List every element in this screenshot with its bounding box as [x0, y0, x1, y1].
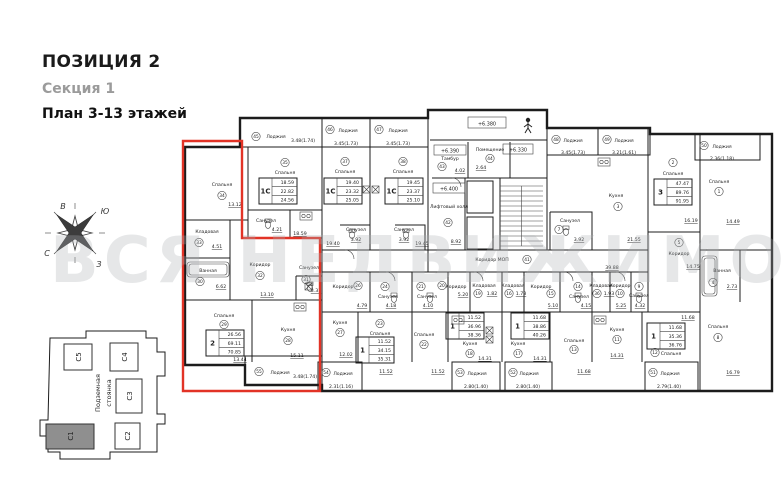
room-area: 11.52 [379, 369, 392, 375]
room-number: 20 [439, 283, 445, 289]
loggia-dims: 3.45(1.73) [334, 141, 358, 147]
room-r15: Коридор155.10 [531, 284, 559, 309]
room-name: Санузел [299, 265, 319, 271]
room-number: 7 [558, 227, 561, 233]
room-area: 21.55 [627, 237, 640, 243]
room-area: 13.10 [260, 292, 273, 298]
room-name: Лифтовый холл [430, 203, 468, 210]
room-r11: Кухня1114.31 [610, 327, 625, 359]
loggia-l49: 49Лоджия3.21(1.61) [598, 128, 650, 156]
loggia-l55: 55Лоджия3.48(1.74) [245, 356, 322, 385]
loggia-label: Лоджия [338, 128, 358, 134]
room-number: 18 [467, 351, 473, 357]
loggia-label: Лоджия [270, 370, 290, 376]
room-name: Спальня [708, 324, 729, 330]
loggia-dims: 2.80(1.40) [516, 384, 540, 390]
loggia-number: 47 [376, 127, 382, 133]
room-area: 5.10 [548, 303, 558, 309]
loggia-dims: 3.48(1.74) [291, 138, 315, 144]
unit-area-row: 47.47 [676, 181, 689, 187]
unit-type: 1 [651, 333, 656, 341]
room-r19: Кладовая191.82 [472, 283, 497, 298]
unit-table-u3: 347.4789.7691.95 [654, 179, 692, 205]
room-area: 2.64 [476, 165, 486, 171]
room-r33: Кладовая334.51 [195, 229, 222, 250]
loggia-label: Лоджия [467, 371, 487, 377]
room-name: Спальня [709, 179, 730, 185]
loggia-dims: 3.48(1.74) [293, 374, 317, 380]
site-label-c1: С1 [67, 431, 75, 440]
room-area: 1.82 [487, 291, 497, 297]
room-name: Санузел [560, 218, 580, 224]
unit-area-row: 35.31 [378, 356, 391, 362]
room-area: 14.31 [533, 356, 546, 362]
room-r44: Помещение442.64 [476, 147, 505, 171]
room-name: Кладовая [501, 283, 525, 289]
room-name: Спальня [414, 332, 435, 338]
room-name: Коридор [446, 284, 467, 290]
elevation-value: +6.390 [441, 148, 459, 154]
room-number: 4 [712, 280, 715, 286]
compass-label-west: З [96, 260, 101, 269]
room-area: 16.79 [726, 370, 739, 376]
room-number: 17 [515, 351, 521, 357]
room-b35: Санузел4.21 [256, 218, 282, 233]
room-area: 39.88 [605, 265, 618, 271]
room-area: 14.31 [610, 353, 623, 359]
loggia-number: 50 [701, 143, 707, 149]
loggia-number: 51 [650, 370, 656, 376]
room-number: 12 [652, 350, 658, 356]
unit-area-row: 38.86 [533, 324, 546, 330]
room-area: 13.44 [233, 357, 246, 363]
door-swing [564, 272, 573, 281]
unit-table-uD: 111.6835.3636.76 [647, 323, 685, 349]
room-name: Помещение [476, 147, 505, 153]
room-name: Кухня [609, 193, 624, 199]
room-r18: Кухня1814.31 [463, 341, 492, 362]
room-name: Спальня [564, 338, 585, 344]
loggia-label: Лоджия [519, 371, 539, 377]
room-r23: Спальня2311.52 [370, 319, 393, 375]
unit-type: 1 [515, 323, 520, 331]
unit-area-row: 36.96 [468, 324, 481, 330]
room-r31: Санузел313.31 [299, 265, 321, 294]
loggia-dims: 3.45(1.73) [386, 141, 410, 147]
room-name: Кухня [610, 327, 625, 333]
unit-area-row: 11.52 [468, 315, 481, 321]
room-area: 4.51 [212, 244, 222, 250]
room-area: 19.45 [415, 241, 428, 247]
room-name: Ванная [713, 268, 731, 274]
room-number: 13 [571, 347, 577, 353]
room-area: 4.21 [272, 227, 282, 233]
compass-label-east: В [60, 202, 66, 211]
unit-area-row: 70.85 [228, 349, 241, 355]
room-name: Кухня [511, 341, 526, 347]
vent-shaft [372, 186, 379, 193]
room-number: 26 [355, 283, 361, 289]
room-name: Спальня [212, 182, 233, 188]
unit-table-u2: 226.5669.1170.85 [206, 330, 244, 356]
unit-area-row: 40.26 [533, 332, 546, 338]
room-r34: Спальня3413.12 [212, 182, 242, 208]
vent-shaft [363, 186, 370, 193]
unit-area-row: 23.37 [407, 189, 420, 195]
loggia-l51: 51Лоджия2.79(1.40) [645, 362, 698, 391]
room-number: 43 [439, 164, 445, 170]
room-r27: Кухня2712.02 [333, 320, 353, 358]
door-swing [474, 272, 483, 281]
room-r32: Коридор3213.10 [250, 262, 274, 298]
room-area: 11.68 [681, 315, 694, 321]
door-swing [386, 272, 395, 281]
evacuation-person-icon [524, 118, 532, 133]
room-area: 11.68 [577, 369, 590, 375]
room-name: Спальня [663, 171, 684, 177]
unit-area-row: 38.36 [468, 332, 481, 338]
room-r3: Кухня321.55 [609, 193, 641, 243]
unit-area-row: 22.82 [281, 189, 294, 195]
loggia-dims: 2.80(1.40) [464, 384, 488, 390]
room-r28: Кухня2815.11 [281, 327, 304, 359]
unit-area-row: 26.56 [228, 332, 241, 338]
loggia-l50: 50Лоджия2.36(1.18) [695, 134, 760, 162]
site-label-c2: С2 [124, 431, 132, 440]
loggia-l45: 45Лоджия3.48(1.74) [240, 118, 322, 147]
unit-area-row: 19.40 [346, 180, 359, 186]
room-name: Кухня [281, 327, 296, 333]
unit-area-row: 19.45 [407, 180, 420, 186]
room-number: 3 [617, 204, 620, 210]
staircase-steps [500, 186, 543, 246]
room-number: 33 [196, 240, 202, 246]
loggia-l52: 52Лоджия2.80(1.40) [505, 362, 552, 391]
room-name: Кладовая [195, 229, 219, 235]
room-area: 4.15 [581, 303, 591, 309]
room-area: 4.79 [357, 303, 367, 309]
unit-area-row: 11.68 [533, 315, 546, 321]
compass-label-south: Ю [101, 207, 110, 216]
room-name: Спальня [275, 170, 296, 176]
site-plan: С5 С4 С3 С2 С1 Подземная стоянка [40, 331, 165, 459]
room-area: 4.32 [635, 303, 645, 309]
unit-table-uC: 111.6838.8640.26 [511, 313, 549, 339]
room-name: Спальня [370, 331, 391, 337]
unit-area-row: 91.95 [676, 198, 689, 204]
unit-area-row: 36.76 [669, 342, 682, 348]
room-area: 11.52 [431, 369, 444, 375]
room-area: 2.73 [727, 284, 737, 290]
room-name: Ванная [199, 268, 217, 274]
unit-type: 1С [260, 188, 270, 196]
room-name: Санузел [378, 294, 398, 300]
loggia-l46: 46Лоджия3.45(1.73) [322, 118, 370, 147]
room-number: 42 [445, 220, 451, 226]
room-number: 22 [421, 342, 427, 348]
room-r30: Ванная306.62 [196, 268, 226, 290]
site-parking-label-1: Подземная [94, 374, 102, 412]
loggia-number: 45 [253, 134, 259, 140]
room-number: 15 [548, 291, 554, 297]
room-number: 14 [575, 284, 581, 290]
room-r8: Спальня816.79 [708, 324, 740, 376]
room-r17: Кухня1714.31 [511, 341, 547, 362]
elevation-mark: +6.380 [468, 117, 506, 128]
room-area: 13.12 [228, 202, 241, 208]
room-area: 3.92 [574, 237, 584, 243]
room-number: 30 [197, 279, 203, 285]
room-r26: Коридор264.79 [333, 281, 368, 309]
room-name: Коридор [669, 251, 690, 257]
loggia-dims: 2.31(1.16) [329, 384, 353, 390]
loggia-dims: 3.45(1.73) [561, 150, 585, 156]
loggia-l48: 48Лоджия3.45(1.73) [547, 128, 598, 156]
unit-area-row: 24.56 [281, 197, 294, 203]
room-number: 9 [638, 284, 641, 290]
unit-area-row: 69.11 [228, 341, 241, 347]
room-area: 4.10 [423, 303, 433, 309]
room-number: 37 [342, 159, 348, 165]
room-number: 32 [257, 273, 263, 279]
elevation-mark: +6.400 [433, 183, 465, 193]
room-area: 18.59 [293, 231, 306, 237]
room-number: 5 [678, 240, 681, 246]
room-name: Спальня [214, 313, 235, 319]
loggia-dims: 3.21(1.61) [612, 150, 636, 156]
room-number: 38 [400, 159, 406, 165]
room-r4: Ванная42.73 [709, 268, 737, 290]
unit-area-row: 89.76 [676, 190, 689, 196]
room-name: Кладовая [472, 283, 496, 289]
room-number: 16 [506, 291, 512, 297]
loggia-number: 53 [457, 370, 463, 376]
room-r22: Спальня2211.52 [414, 332, 445, 375]
unit-table-u38: 1С19.4523.3725.10 [385, 178, 423, 204]
vent-shaft [486, 336, 493, 343]
room-r20: Коридор205.20 [438, 281, 468, 298]
room-r5: Коридор514.75 [669, 238, 700, 270]
room-area: 6.62 [216, 284, 226, 290]
room-area: 14.31 [478, 356, 491, 362]
stove-fixture [294, 303, 306, 311]
unit-type: 1 [360, 347, 365, 355]
room-area: 19.40 [326, 241, 339, 247]
section-subtitle: Секция 1 [42, 81, 187, 97]
loggia-l47: 47Лоджия3.45(1.73) [370, 118, 428, 147]
room-r16: Кладовая161.73 [501, 283, 526, 298]
room-r42: Лифтовый холл428.92 [430, 203, 468, 245]
room-name: Кухня [463, 341, 478, 347]
room-number: 24 [382, 284, 388, 290]
stove-fixture [300, 212, 312, 220]
loggia-label: Лоджия [660, 371, 680, 377]
room-name: Санузел [629, 293, 649, 299]
room-r1: Спальня114.49 [709, 179, 740, 225]
room-name: Санузел [569, 294, 589, 300]
loggia-label: Лоджия [614, 138, 634, 144]
loggia-number: 55 [256, 369, 262, 375]
room-number: 10 [617, 291, 623, 297]
room-number: 35 [282, 160, 288, 166]
room-name: Коридор [610, 283, 631, 289]
unit-area-row: 34.15 [378, 348, 391, 354]
plan-subtitle: План 3-13 этажей [42, 106, 187, 122]
compass-label-north: С [44, 249, 50, 258]
unit-type: 2 [210, 340, 215, 348]
room-r13: Спальня1311.68 [564, 338, 591, 375]
room-area: 8.92 [451, 239, 461, 245]
site-label-c3: С3 [126, 391, 134, 400]
bathtub-fixture [702, 256, 717, 296]
unit-type: 3 [658, 189, 663, 197]
unit-area-row: 25.10 [407, 197, 420, 203]
room-number: 28 [285, 338, 291, 344]
room-area: 1.73 [516, 291, 526, 297]
room-area: 16.19 [684, 218, 697, 224]
room-name: Спальня [661, 351, 682, 357]
unit-area-row: 35.36 [669, 334, 682, 340]
site-parking-label-2: стоянка [105, 379, 113, 406]
loggia-l53: 53Лоджия2.80(1.40) [452, 362, 500, 391]
room-number: 2 [672, 160, 675, 166]
site-label-c5: С5 [75, 352, 83, 361]
room-b38: Санузел3.92 [394, 227, 414, 243]
room-area: 1.93 [604, 291, 614, 297]
loggia-label: Лоджия [333, 371, 353, 377]
room-area: 4.18 [386, 303, 396, 309]
door-swing [345, 250, 354, 259]
room-name: Коридор [531, 284, 552, 290]
room-number: 11 [614, 337, 620, 343]
room-number: 34 [219, 193, 225, 199]
elevator-shaft-1 [467, 181, 493, 213]
room-name: Коридор МОП [475, 257, 508, 263]
elevator-shaft-2 [467, 217, 493, 249]
unit-area-row: 11.52 [378, 339, 391, 345]
elevation-mark: +6.330 [503, 144, 533, 154]
room-area: 5.20 [458, 292, 468, 298]
room-name: Спальня [393, 169, 414, 175]
room-number: 23 [377, 321, 383, 327]
room-name: Тамбур [440, 156, 459, 162]
room-area: 12.02 [339, 352, 352, 358]
unit-area-row: 23.32 [346, 189, 359, 195]
elevation-value: +6.400 [440, 186, 458, 192]
room-r7: Санузел73.92 [555, 218, 584, 243]
loggia-label: Лоджия [388, 128, 408, 134]
room-area: 5.25 [616, 303, 626, 309]
room-r43: Тамбур434.02 [438, 156, 465, 174]
room-area: 3.92 [351, 237, 361, 243]
stove-fixture [598, 158, 610, 166]
loggia-label: Лоджия [712, 144, 732, 150]
elevation-value: +6.330 [509, 147, 527, 153]
unit-type: 1С [386, 188, 396, 196]
compass-rose: В Ю С З [44, 202, 109, 269]
room-r14: Санузел144.15 [569, 282, 591, 309]
loggia-dims: 2.36(1.18) [710, 156, 734, 162]
unit-area-row: 11.68 [669, 325, 682, 331]
vent-shaft [305, 283, 312, 290]
room-number: 21 [418, 284, 424, 290]
room-name: Коридор [250, 262, 271, 268]
document-header: ПОЗИЦИЯ 2 Секция 1 План 3-13 этажей [42, 52, 187, 122]
unit-table-u37: 1С19.4023.3225.05 [324, 178, 362, 204]
loggia-number: 49 [604, 137, 610, 143]
elevation-mark: +6.390 [434, 145, 466, 155]
room-number: 27 [337, 330, 343, 336]
loggia-number: 52 [510, 370, 516, 376]
page-title: ПОЗИЦИЯ 2 [42, 52, 187, 72]
loggia-number: 46 [327, 127, 333, 133]
vent-shaft [486, 327, 493, 334]
room-r41: Коридор МОП4139.88 [475, 255, 618, 271]
toilet-fixture [563, 226, 569, 235]
stair-elevator-core [467, 118, 543, 249]
unit-table-uA: 111.5234.1535.31 [356, 337, 394, 363]
unit-type: 1С [325, 188, 335, 196]
room-name: Кухня [333, 320, 348, 326]
room-number: 44 [487, 156, 493, 162]
room-number: 36 [594, 291, 600, 297]
room-number: 41 [524, 257, 530, 263]
elevation-value: +6.380 [478, 121, 496, 127]
room-name: Коридор [333, 284, 354, 290]
unit-table-u35: 1С18.5922.8224.56 [259, 178, 297, 204]
room-number: 8 [717, 335, 720, 341]
unit-area-row: 18.59 [281, 180, 294, 186]
unit-area-row: 25.05 [346, 197, 359, 203]
loggia-label: Лоджия [563, 138, 583, 144]
loggia-dims: 2.79(1.40) [657, 384, 681, 390]
site-label-c4: С4 [121, 352, 129, 362]
room-area: 14.75 [686, 264, 699, 270]
room-area: 14.49 [726, 219, 739, 225]
room-name: Спальня [335, 169, 356, 175]
room-number: 29 [221, 322, 227, 328]
loggia-number: 54 [323, 370, 329, 376]
room-area: 15.11 [290, 353, 303, 359]
loggia-label: Лоджия [266, 134, 286, 140]
loggia-number: 48 [553, 137, 559, 143]
stove-fixture [594, 316, 606, 324]
loggia-l54: 54Лоджия2.31(1.16) [318, 362, 362, 391]
room-area: 4.02 [455, 168, 465, 174]
door-swing [616, 272, 625, 281]
room-number: 1 [718, 189, 721, 195]
room-number: 19 [475, 291, 481, 297]
